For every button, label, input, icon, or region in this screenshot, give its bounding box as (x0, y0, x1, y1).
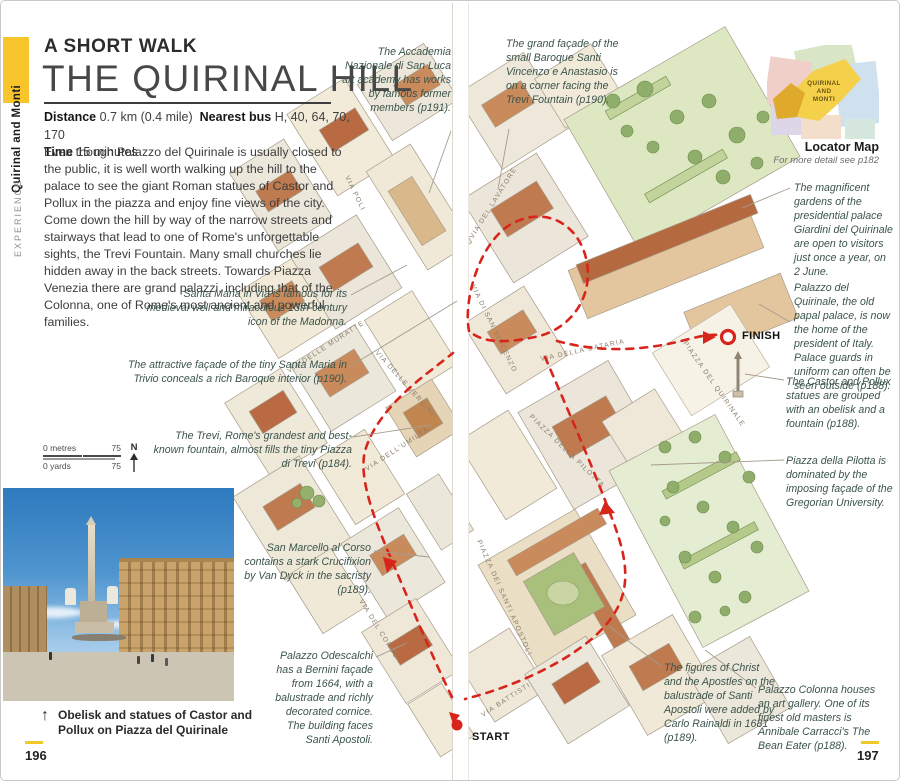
annotation-accademia: The Accademia Nazionale di San Luca art … (339, 46, 451, 116)
annotation-santi-vincenzo: The grand façade of the small Baroque Sa… (506, 38, 626, 108)
page-number-left-value: 196 (25, 748, 47, 763)
map-scale-bar: 0 metres 75 0 yards 75 (43, 443, 121, 471)
walk-kicker: A SHORT WALK (44, 36, 197, 58)
locator-subtitle: For more detail see p182 (771, 155, 879, 166)
start-label: START (472, 731, 510, 743)
north-label: N (127, 442, 141, 453)
annotation-santa-maria-in-trivio: The attractive façade of the tiny Santa … (127, 359, 347, 387)
annotation-quirinale-gardens: The magnificent gardens of the president… (794, 182, 894, 280)
distance-label: Distance (44, 110, 96, 124)
locator-label-line: MONTI (813, 96, 835, 103)
photo-caption-text: Obelisk and statues of Castor and Pollux… (58, 708, 256, 738)
distance-value: 0.7 km (0.4 mile) (100, 110, 193, 124)
north-compass: N (127, 442, 141, 478)
sidebar-section-label: EXPERIENCE (13, 179, 23, 257)
photo-caption: ↑ Obelisk and statues of Castor and Poll… (41, 708, 256, 738)
guidebook-spread: VIA POLI VIA DEL LAVATORE VIA DELLE MURA… (0, 0, 900, 781)
page-number-dash (861, 741, 879, 744)
page-number-left: 196 (25, 741, 47, 763)
scale-yards-label: 0 yards (43, 461, 71, 471)
page-gutter (452, 3, 469, 780)
finish-marker (722, 331, 735, 344)
annotation-piazza-pilotta: Piazza della Pilotta is dominated by the… (786, 455, 894, 511)
annotation-santa-maria-in-via: Santa Maria in Via is famous for its med… (141, 288, 347, 330)
meta-line-1: Distance 0.7 km (0.4 mile) Nearest bus H… (44, 109, 354, 144)
photo-statue (65, 588, 76, 605)
photo-palace (119, 558, 235, 660)
title-rule (44, 102, 331, 104)
locator-label-line: AND (817, 88, 832, 95)
walk-photo (3, 488, 234, 701)
annotation-palazzo-odescalchi: Palazzo Odescalchi has a Bernini façade … (265, 650, 373, 748)
photo-fountain (72, 634, 126, 641)
locator-label-line: QUIRINAL (807, 80, 841, 87)
locator-map: QUIRINAL AND MONTI (767, 45, 879, 141)
scale-metres-max: 75 (112, 443, 121, 453)
photo-statue (107, 586, 118, 604)
bus-label: Nearest bus (200, 110, 272, 124)
page-number-dash (25, 741, 43, 744)
scale-bar-yards (43, 458, 115, 460)
photo-ground (3, 652, 234, 701)
annotation-san-marcello: San Marcello al Corso contains a stark C… (239, 542, 371, 598)
sidebar-area-label: Quirinal and Monti (11, 85, 23, 193)
north-arrow-icon (128, 453, 140, 473)
locator-caption: Locator Map For more detail see p182 (771, 140, 879, 166)
photo-obelisk (88, 524, 95, 603)
finish-label: FINISH (742, 330, 780, 342)
photo-left-building (3, 586, 47, 652)
scale-yards-max: 75 (112, 461, 121, 471)
annotation-trevi: The Trevi, Rome's grandest and best-know… (151, 430, 352, 472)
locator-title: Locator Map (771, 140, 879, 154)
up-arrow-icon: ↑ (41, 708, 49, 738)
scale-bar-metres (43, 455, 121, 458)
page-number-right: 197 (857, 741, 879, 763)
annotation-castor-pollux: The Castor and Pollux statues are groupe… (786, 376, 896, 432)
page-number-right-value: 197 (857, 748, 879, 763)
scale-metres-label: 0 metres (43, 443, 76, 453)
